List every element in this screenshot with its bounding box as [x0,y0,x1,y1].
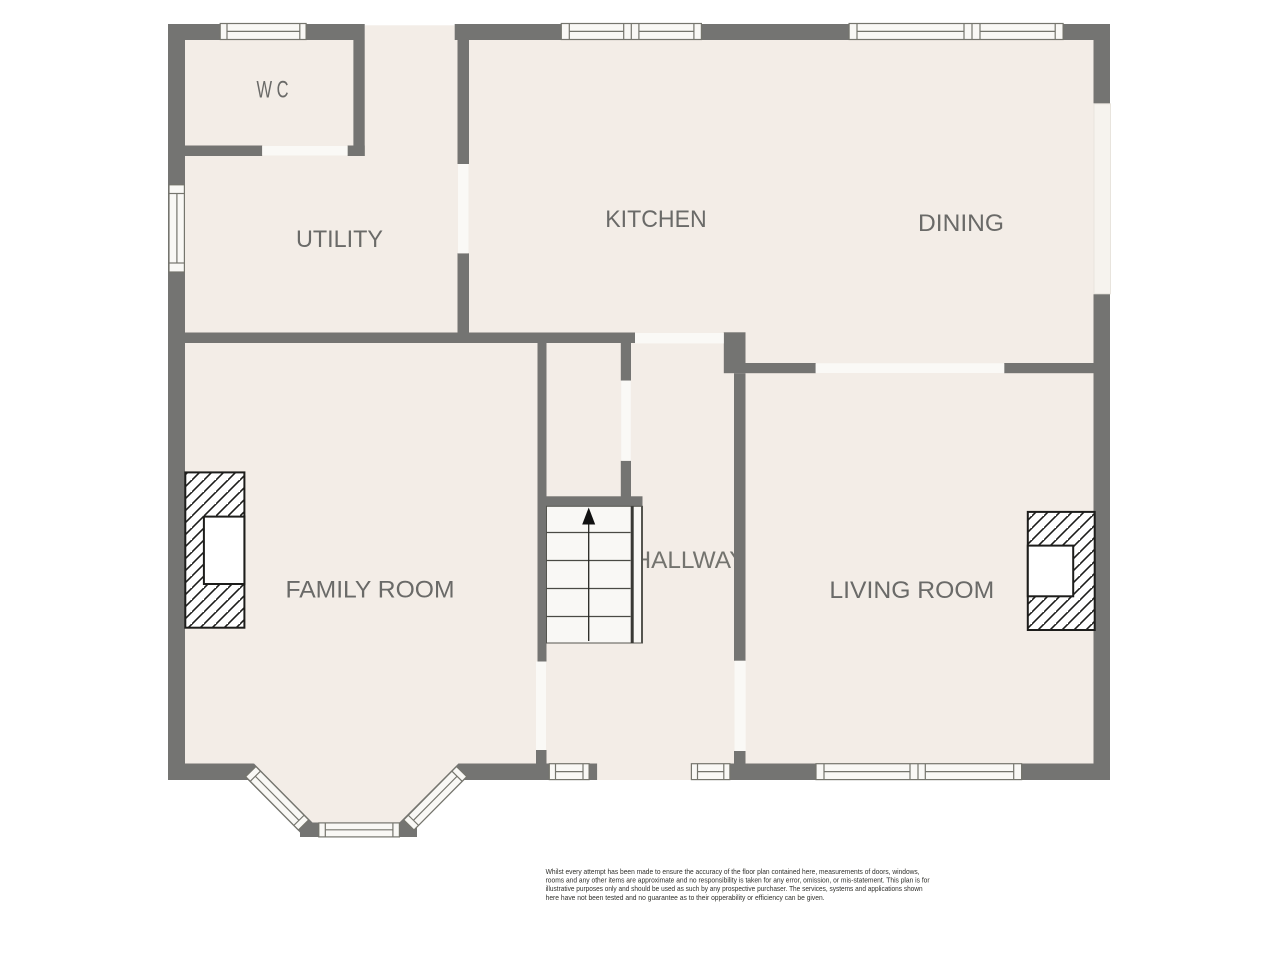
svg-text:here have not been tested and: here have not been tested and no guarant… [546,893,825,902]
svg-text:FAMILY ROOM: FAMILY ROOM [286,577,455,604]
svg-text:illustrative purposes only and: illustrative purposes only and should be… [546,884,923,893]
svg-text:LIVING ROOM: LIVING ROOM [829,577,994,604]
svg-text:W C: W C [257,77,289,104]
svg-text:HALLWAY: HALLWAY [634,547,746,574]
svg-text:DINING: DINING [918,210,1004,237]
svg-text:UTILITY: UTILITY [296,226,383,253]
svg-text:Whilst every attempt has been: Whilst every attempt has been made to en… [546,867,920,876]
svg-text:rooms and any other items are: rooms and any other items are approximat… [546,876,931,885]
svg-text:KITCHEN: KITCHEN [605,206,707,233]
